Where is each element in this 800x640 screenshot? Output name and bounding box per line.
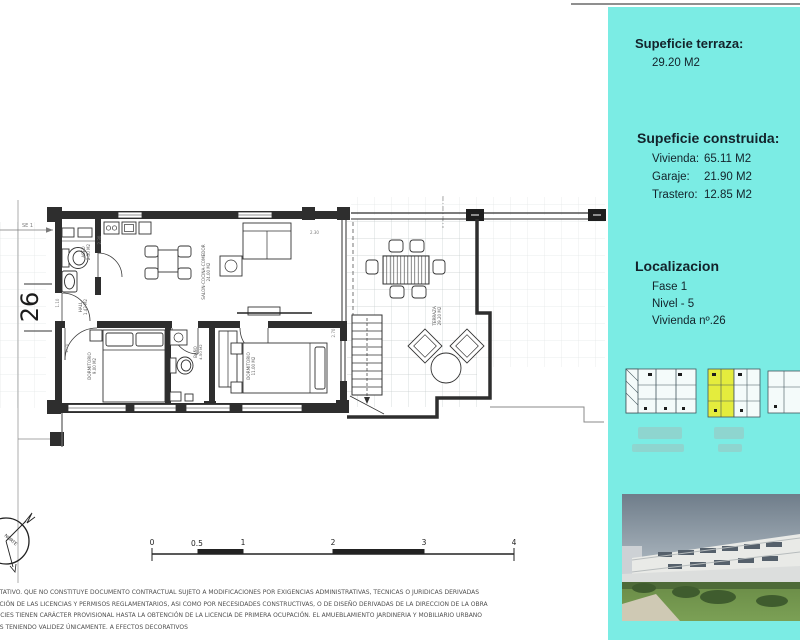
key-plan — [618, 355, 800, 470]
terrace-area-value: 29.20 M2 — [652, 57, 700, 69]
building-photo — [622, 494, 800, 621]
bedroom2-furniture — [219, 331, 327, 393]
svg-text:2.30: 2.30 — [310, 230, 319, 235]
svg-text:NORTE: NORTE — [3, 533, 19, 548]
svg-text:2.20: 2.20 — [64, 343, 69, 352]
svg-text:2.30: 2.30 — [97, 235, 102, 244]
room-area-salon: 24.00 M2 — [206, 262, 211, 281]
faded-plan-shadows — [632, 427, 744, 452]
terrace-area-title: Supeficie terraza: — [635, 36, 743, 51]
side-table-icon — [220, 256, 242, 276]
svg-text:2: 2 — [331, 538, 336, 547]
nightstand-icon — [231, 382, 242, 393]
plan-sheet: SE 1 26 — [0, 0, 800, 640]
disclaimer-line: OS TENIENDO VALIDEZ ÚNICAMENTE. A EFECTO… — [0, 622, 488, 634]
built-area-title: Supeficie construida: — [637, 130, 779, 146]
svg-text:0.5: 0.5 — [191, 539, 203, 548]
info-panel: Supeficie terraza: 29.20 M2 Supeficie co… — [608, 7, 800, 640]
north-compass-icon: NORTE — [0, 513, 35, 572]
disclaimer-line: FICIES TIENEN CARÁCTER PROVISIONAL HASTA… — [0, 610, 488, 622]
disclaimer-line: NCIÓN DE LAS LICENCIAS Y PERMISOS REGLAM… — [0, 599, 488, 611]
built-area-row: Garaje:21.90 M2 — [652, 171, 752, 189]
location-list: Fase 1 Nivel - 5 Vivienda nº.26 — [652, 279, 726, 330]
svg-text:3: 3 — [422, 538, 427, 547]
room-area-hall: 1.43 M2 — [83, 298, 88, 315]
nightstand-icon — [90, 330, 102, 341]
top-divider — [571, 3, 800, 5]
built-area-row: Trastero:12.85 M2 — [652, 189, 752, 207]
room-area-aseo: 2.50 M2 — [86, 243, 91, 260]
location-title: Localizacion — [635, 258, 719, 274]
dining-set — [145, 246, 191, 279]
room-area-dorm1: 9.00 M2 — [92, 357, 97, 374]
built-area-row: Vivienda:65.11 M2 — [652, 153, 752, 171]
location-item: Vivienda nº.26 — [652, 313, 726, 330]
disclaimer-line: NTATIVO. QUE NO CONSTITUYE DOCUMENTO CON… — [0, 587, 488, 599]
toilet-icon — [170, 358, 176, 373]
unit-number-label: 26 — [16, 292, 44, 323]
built-area-list: Vivienda:65.11 M2 Garaje:21.90 M2 Traste… — [652, 153, 752, 207]
tv-cabinet-icon — [248, 307, 280, 315]
svg-text:2.70: 2.70 — [331, 328, 336, 337]
kitchen-fixtures — [104, 222, 151, 234]
room-area-bano: 4.50 M2 — [198, 344, 203, 360]
sofa-and-tv — [220, 223, 312, 315]
round-table-icon — [431, 353, 461, 383]
room-area-terraza: 29.20 M2 — [437, 306, 442, 325]
glass-doors — [341, 219, 346, 381]
nightstand-icon — [231, 343, 242, 354]
outdoor-table-icon — [383, 256, 429, 284]
legal-disclaimer: NTATIVO. QUE NO CONSTITUYE DOCUMENTO CON… — [0, 587, 488, 633]
location-item: Nivel - 5 — [652, 296, 726, 313]
bedroom1-furniture — [90, 330, 165, 402]
scale-bar: 0 0.5 1 2 3 4 — [150, 538, 517, 561]
bathroom-fixtures — [170, 330, 193, 401]
location-item: Fase 1 — [652, 279, 726, 296]
svg-text:0: 0 — [150, 538, 155, 547]
svg-text:4: 4 — [512, 538, 517, 547]
svg-text:1.10: 1.10 — [55, 298, 60, 307]
grid-label: SE 1 — [22, 223, 33, 229]
washer-icon — [170, 330, 187, 345]
room-area-dorm2: 11.00 M2 — [251, 356, 256, 375]
svg-text:1: 1 — [241, 538, 246, 547]
